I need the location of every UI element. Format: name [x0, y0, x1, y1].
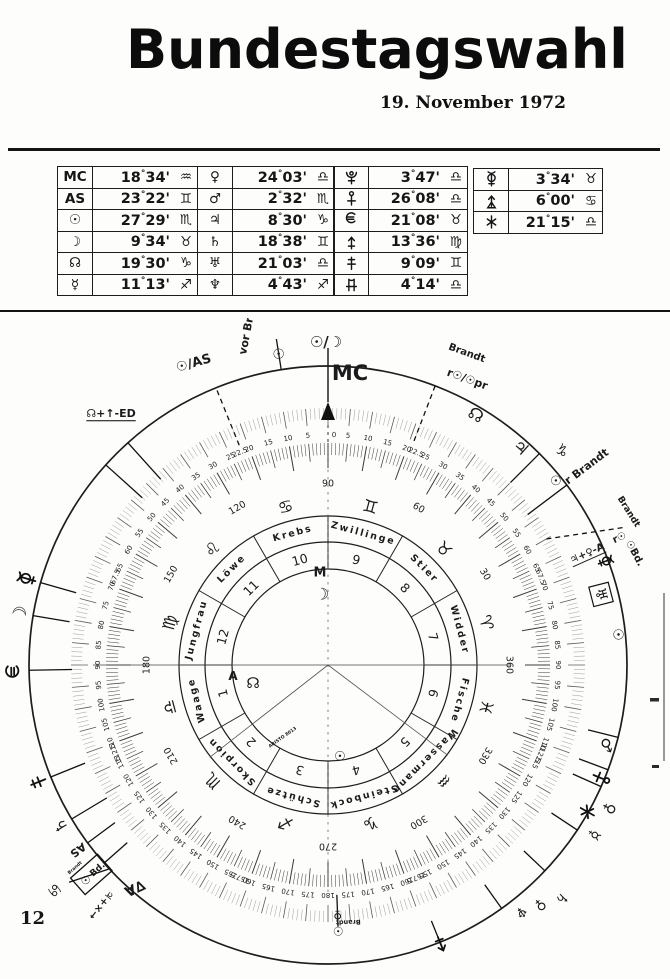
svg-text:10: 10 [283, 434, 293, 443]
AS-icon: AS [58, 189, 93, 210]
table-row: ♂2°32'♏ [198, 188, 334, 210]
svg-text:40: 40 [174, 483, 186, 495]
position-value: 21°03'♎ [233, 255, 334, 272]
svg-text:100: 100 [549, 698, 559, 713]
sagittarius-icon: ♐ [276, 811, 296, 834]
mc-pointer: ☉/☽MC [310, 333, 368, 468]
svg-text:140: 140 [468, 834, 483, 849]
apollon-icon [334, 275, 369, 296]
house-number-1: 1 [214, 687, 231, 699]
house-number-4: 4 [350, 762, 362, 779]
table-row: 3°47'♎ [334, 167, 467, 188]
mars-icon: ♂ [198, 189, 233, 210]
svg-text:35: 35 [190, 471, 202, 483]
svg-text:75: 75 [101, 600, 111, 611]
position-value: 13°36'♍ [369, 233, 467, 250]
svg-text:75: 75 [545, 600, 555, 611]
svg-text:55: 55 [511, 527, 523, 539]
neptune-icon: ♆ [511, 901, 531, 921]
svg-text:175: 175 [341, 890, 355, 899]
mc-label: MC [332, 361, 368, 385]
svg-text:67.5: 67.5 [534, 568, 547, 585]
poseidon-icon [578, 803, 596, 820]
mercury-icon: ☿ [584, 826, 604, 843]
svg-text:22.5: 22.5 [231, 446, 248, 459]
cancer-icon: ♋ [44, 879, 66, 901]
node-icon: ☊ [58, 253, 93, 274]
admetos-icon [17, 572, 36, 586]
table-row: 9°09'♊ [334, 252, 467, 274]
annotation-text: Brandt [336, 918, 361, 927]
svg-text:105: 105 [100, 717, 111, 732]
svg-text:100: 100 [96, 698, 106, 713]
position-value: 9°34'♉ [93, 233, 197, 250]
svg-text:55: 55 [134, 527, 146, 539]
dial-svg: 0180551010151520202525303035354040454550… [0, 318, 670, 975]
positions-table-3: 3°47'♎26°08'♎21°08'♉13°36'♍9°09'♊4°14'♎ [333, 166, 468, 296]
annotation-text: ☉Bd. [623, 539, 646, 568]
libra-icon: ♎ [575, 214, 597, 230]
svg-text:45: 45 [159, 496, 171, 508]
table-row: 3°34'♉ [474, 169, 602, 190]
libra-icon: ♎ [440, 191, 462, 207]
annotation-text: Brandt [447, 342, 487, 366]
table-row: AS23°22'♊ [58, 188, 197, 210]
taurus-icon: ♉ [440, 212, 462, 228]
svg-text:95: 95 [95, 680, 104, 690]
saturn-icon: ♄ [49, 815, 73, 837]
svg-text:67.5: 67.5 [109, 568, 122, 585]
svg-text:150: 150 [435, 857, 451, 871]
moon-icon: ☽ [315, 585, 329, 604]
position-value: 2°32'♏ [233, 190, 334, 207]
svg-text:15: 15 [382, 438, 393, 448]
scorpio-icon: ♏ [200, 768, 225, 793]
kronos-icon [334, 253, 369, 274]
sun-moon-midpoint-label: ☉/☽ [310, 333, 342, 351]
center-mark-A: A [228, 669, 238, 683]
poseidon-icon [474, 212, 509, 233]
venus-icon: ♀ [599, 799, 620, 817]
libra-icon: ♎ [307, 255, 329, 271]
horizontal-rule-top [8, 148, 660, 151]
svg-text:120: 120 [227, 499, 248, 518]
annotation-text: ♃+×→ [86, 888, 116, 922]
table-row: ☊19°30'♑ [58, 252, 197, 274]
svg-text:45: 45 [485, 496, 497, 508]
gemini-icon: ♊ [170, 191, 192, 207]
taurus-icon: ♉ [575, 171, 597, 187]
position-value: 4°43'♐ [233, 276, 334, 293]
position-value: 18°38'♊ [233, 233, 334, 250]
svg-text:120: 120 [122, 772, 136, 788]
house-number-12: 12 [213, 627, 232, 646]
svg-text:35: 35 [454, 471, 466, 483]
chart-date: 19. November 1972 [380, 93, 566, 113]
svg-text:120: 120 [520, 772, 534, 788]
svg-text:80: 80 [97, 620, 106, 630]
svg-text:210: 210 [162, 745, 181, 766]
table-row: 26°08'♎ [334, 188, 467, 210]
vulkanus-icon [474, 191, 509, 212]
svg-text:150: 150 [162, 564, 181, 585]
table-row: 13°36'♍ [334, 231, 467, 253]
node-icon: ☊ [464, 403, 487, 428]
house-number-5: 5 [397, 734, 413, 750]
svg-text:330: 330 [475, 745, 494, 766]
position-value: 21°08'♉ [369, 212, 467, 229]
position-value: 23°22'♊ [93, 190, 197, 207]
edge-marks [650, 698, 659, 768]
uranus-icon: ♅ [198, 253, 233, 274]
mars-icon: ♂ [596, 735, 618, 754]
svg-text:60: 60 [521, 544, 532, 556]
house-number-10: 10 [290, 550, 309, 569]
table-row: ☽9°34'♉ [58, 231, 197, 253]
jupiter-icon: ♃ [508, 436, 533, 461]
svg-text:5: 5 [305, 432, 310, 440]
annotation-text: vor Brandt [236, 318, 261, 356]
scanned-book-page: { "header": { "title": "Bundestagswahl",… [0, 0, 670, 975]
svg-text:130: 130 [144, 805, 159, 820]
svg-text:30: 30 [437, 460, 449, 471]
zeus-icon [334, 232, 369, 253]
position-value: 9°09'♊ [369, 255, 467, 272]
scorpio-icon: ♏ [170, 212, 192, 228]
zodiac-name-Krebs: Krebs [272, 523, 314, 544]
cancer-icon: ♋ [276, 496, 296, 519]
libra-icon: ♎ [159, 697, 182, 717]
position-value: 19°30'♑ [93, 255, 197, 272]
moon-icon: ☽ [58, 232, 93, 253]
svg-text:145: 145 [188, 846, 204, 860]
leo-icon: ♌ [200, 537, 225, 562]
scorpio-icon: ♏ [307, 191, 329, 207]
table-row: 4°14'♎ [334, 274, 467, 296]
svg-text:95: 95 [553, 680, 562, 690]
position-value: 3°47'♎ [369, 169, 467, 186]
center-mark-ARISTO 8013: ARISTO 8013 [268, 726, 298, 750]
house-number-6: 6 [425, 687, 442, 699]
table-row: MC18°34'♒ [58, 167, 197, 188]
zodiac-name-Zwillinge: Zwillinge [330, 520, 397, 548]
table-row: ♅21°03'♎ [198, 252, 334, 274]
house-number-11: 11 [240, 577, 262, 599]
positions-table-2: ♀24°03'♎♂2°32'♏♃8°30'♑♄18°38'♊♅21°03'♎♆4… [197, 166, 335, 296]
house-number-7: 7 [425, 631, 442, 643]
annotation-text: ∇A [122, 876, 148, 899]
center-mark-M: M [314, 566, 327, 581]
svg-text:90: 90 [554, 661, 562, 670]
MC-icon: MC [58, 167, 93, 188]
svg-text:5: 5 [345, 432, 350, 440]
saturn-icon: ♄ [551, 888, 571, 908]
svg-text:85: 85 [553, 640, 562, 650]
table-row: ♄18°38'♊ [198, 231, 334, 253]
svg-text:125: 125 [132, 789, 146, 805]
svg-text:157.5: 157.5 [229, 870, 251, 885]
svg-text:135: 135 [158, 820, 173, 835]
svg-text:15: 15 [263, 438, 274, 448]
sun-icon: ☉ [58, 210, 93, 231]
house-number-9: 9 [350, 551, 362, 568]
taurus-icon: ♉ [170, 234, 192, 250]
position-value: 24°03'♎ [233, 169, 334, 186]
venus-icon: ♀ [198, 167, 233, 188]
capricorn-icon: ♑ [551, 440, 573, 462]
svg-text:130: 130 [497, 805, 512, 820]
table-row: ♀24°03'♎ [198, 167, 334, 188]
pluto-icon [334, 167, 369, 188]
positions-table-1: MC18°34'♒AS23°22'♊☉27°29'♏☽9°34'♉☊19°30'… [57, 166, 198, 296]
position-value: 21°15'♎ [509, 214, 602, 231]
svg-text:170: 170 [281, 886, 296, 896]
sun-icon: ☉ [609, 627, 626, 641]
sun-icon: ☉ [334, 750, 346, 765]
position-value: 27°29'♏ [93, 212, 197, 229]
svg-text:140: 140 [172, 834, 187, 849]
position-value: 11°13'♐ [93, 276, 197, 293]
sagittarius-icon: ♐ [170, 277, 192, 293]
taurus-icon: ♉ [431, 537, 456, 562]
admetos-icon [597, 555, 614, 567]
svg-text:300: 300 [408, 812, 429, 831]
svg-text:10: 10 [363, 434, 373, 443]
page-title: Bundestagswahl [126, 18, 628, 81]
svg-text:50: 50 [498, 511, 510, 523]
svg-text:165: 165 [261, 882, 276, 893]
admetos-icon [474, 169, 509, 190]
svg-text:240: 240 [227, 812, 248, 831]
position-value: 4°14'♎ [369, 276, 467, 293]
mercury-icon: ☿ [58, 275, 93, 296]
svg-text:22.5: 22.5 [407, 446, 424, 459]
libra-icon: ♎ [307, 169, 329, 185]
gemini-icon: ♊ [360, 496, 380, 519]
uranus-icon: ♅ [591, 586, 612, 604]
house-number-3: 3 [294, 762, 306, 779]
annotation-text: ☉/AS [174, 351, 213, 375]
jupiter-icon: ♃ [198, 210, 233, 231]
libra-icon: ♎ [440, 277, 462, 293]
sun-icon: ☉ [545, 472, 564, 490]
position-value: 3°34'♉ [509, 171, 602, 188]
hades-icon [6, 666, 19, 677]
svg-text:60: 60 [123, 544, 134, 556]
svg-text:125: 125 [509, 789, 523, 805]
svg-text:40: 40 [470, 483, 482, 495]
moon-icon: ☽ [9, 604, 32, 623]
table-row: ☉27°29'♏ [58, 209, 197, 231]
position-value: 6°00'♋ [509, 192, 602, 209]
position-value: 18°34'♒ [93, 169, 197, 186]
positions-table-4: 3°34'♉6°00'♋21°15'♎ [473, 168, 603, 234]
svg-text:80: 80 [550, 620, 559, 630]
cupido-icon [334, 189, 369, 210]
svg-text:50: 50 [146, 511, 158, 523]
table-row: ♃8°30'♑ [198, 209, 334, 231]
zodiac-name-Stier: Stier [408, 552, 441, 585]
table-row: ☿11°13'♐ [58, 274, 197, 296]
svg-text:90: 90 [322, 479, 334, 490]
svg-text:135: 135 [483, 820, 498, 835]
svg-text:112.5: 112.5 [533, 742, 548, 764]
saturn-icon: ♄ [198, 232, 233, 253]
aries-icon: ♈ [474, 613, 497, 633]
zodiac-name-Löwe: Löwe [215, 552, 248, 585]
svg-text:150: 150 [205, 857, 221, 871]
capricorn-icon: ♑ [170, 255, 192, 271]
cancer-icon: ♋ [575, 193, 597, 209]
table-row: 21°15'♎ [474, 211, 602, 233]
svg-text:0: 0 [332, 431, 337, 439]
virgo-icon: ♍ [440, 234, 462, 250]
capricorn-icon: ♑ [307, 212, 329, 228]
zodiac-name-Steinbock: Steinbock [327, 782, 399, 811]
svg-text:85: 85 [95, 640, 104, 650]
node-icon: ☊ [246, 674, 259, 692]
kronos-icon [29, 775, 47, 790]
svg-text:175: 175 [301, 890, 315, 899]
capricorn-icon: ♑ [360, 811, 380, 834]
svg-text:112.5: 112.5 [108, 742, 123, 764]
sagittarius-icon: ♐ [307, 277, 329, 293]
table-row: ♆4°43'♐ [198, 274, 334, 296]
svg-text:30: 30 [477, 567, 493, 583]
table-row: 6°00'♋ [474, 190, 602, 212]
aquarius-icon: ♒ [170, 169, 192, 185]
gemini-icon: ♊ [307, 234, 329, 250]
virgo-icon: ♍ [159, 613, 182, 633]
house-number-8: 8 [397, 580, 413, 596]
page-number: 12 [20, 908, 45, 929]
annotation-text: r☉/☉pr [445, 366, 490, 393]
aquarius-icon: ♒ [431, 768, 456, 793]
house-number-2: 2 [243, 734, 259, 750]
svg-text:105: 105 [545, 717, 556, 732]
svg-text:30: 30 [207, 460, 219, 471]
svg-text:60: 60 [411, 500, 427, 516]
libra-icon: ♎ [440, 169, 462, 185]
annotation-text: ☊+↑-ED [86, 407, 135, 420]
position-value: 8°30'♑ [233, 212, 334, 229]
uranian-dial-chart: 0180551010151520202525303035354040454550… [0, 318, 670, 975]
hades-icon [334, 210, 369, 231]
svg-text:145: 145 [452, 846, 468, 860]
table-row: 21°08'♉ [334, 209, 467, 231]
center-lines [93, 432, 511, 898]
neptune-icon: ♆ [198, 275, 233, 296]
horizontal-rule-mid [0, 310, 670, 312]
svg-text:170: 170 [361, 886, 376, 896]
pisces-icon: ♓ [474, 697, 497, 717]
position-value: 26°08'♎ [369, 190, 467, 207]
scan-edge-line [663, 593, 665, 761]
gemini-icon: ♊ [440, 255, 462, 271]
svg-text:165: 165 [380, 882, 395, 893]
svg-text:157.5: 157.5 [405, 870, 427, 885]
annotation-text: Brandt [615, 495, 642, 530]
sun-icon: ☉ [271, 346, 286, 364]
venus-icon: ♀ [531, 895, 549, 914]
annotation-text: AS [67, 840, 88, 860]
